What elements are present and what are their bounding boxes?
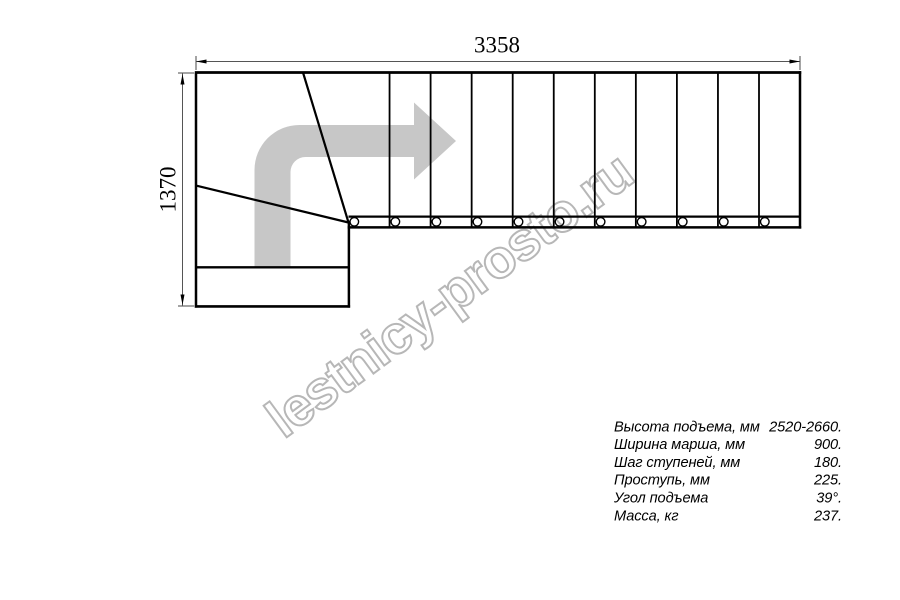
svg-text:Шаг ступеней, мм: Шаг ступеней, мм xyxy=(614,455,740,471)
svg-text:237.: 237. xyxy=(813,508,842,524)
svg-text:Угол подъема: Угол подъема xyxy=(613,491,708,507)
svg-text:2520-2660.: 2520-2660. xyxy=(768,419,842,435)
svg-text:180.: 180. xyxy=(814,455,842,471)
svg-text:39°.: 39°. xyxy=(816,491,842,507)
svg-text:Масса, кг: Масса, кг xyxy=(614,508,678,524)
svg-text:225.: 225. xyxy=(813,473,842,489)
svg-text:900.: 900. xyxy=(814,437,842,453)
svg-text:3358: 3358 xyxy=(474,33,520,58)
svg-text:Проступь, мм: Проступь, мм xyxy=(614,473,710,489)
svg-text:Высота подъема, мм: Высота подъема, мм xyxy=(614,419,760,435)
svg-text:Ширина марша, мм: Ширина марша, мм xyxy=(614,437,745,453)
svg-text:1370: 1370 xyxy=(156,167,181,213)
